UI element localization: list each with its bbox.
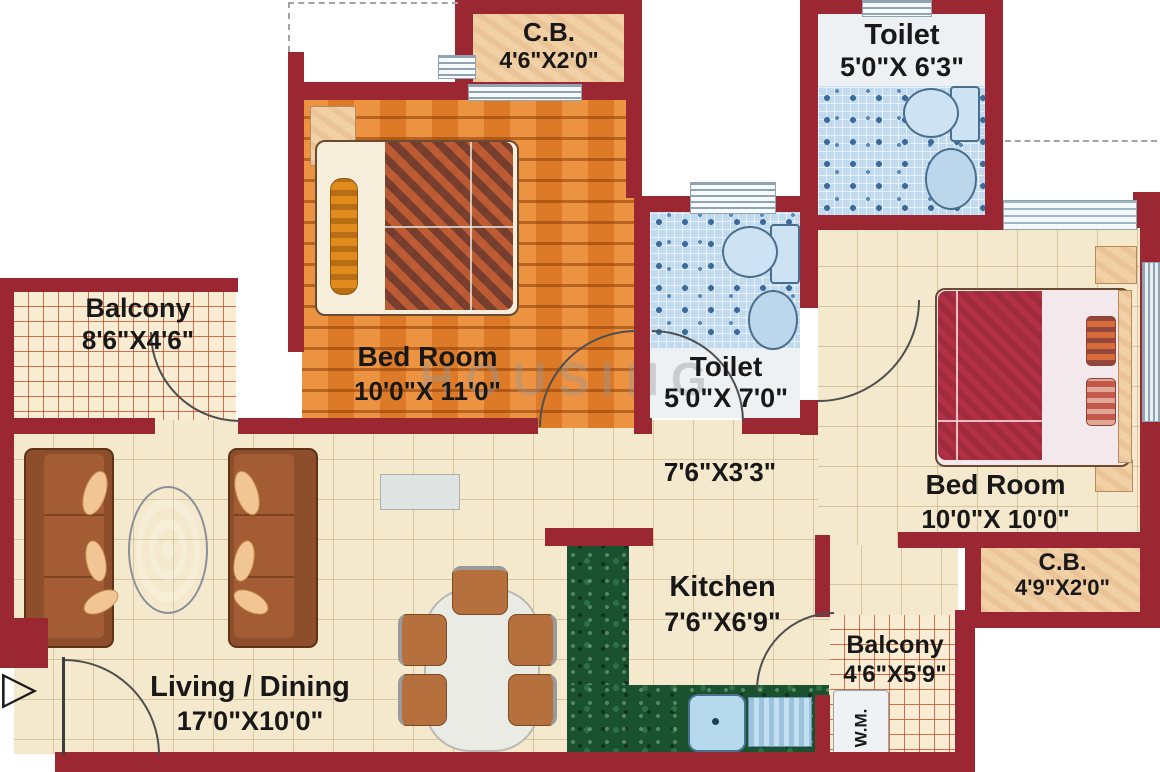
bedroom-right-name: Bed Room xyxy=(888,470,1103,501)
bedroom-right-sidetable-top xyxy=(1095,246,1137,284)
wall-kitchen-north-stub xyxy=(545,528,653,546)
window-bedroom-right-top xyxy=(1003,200,1137,230)
kitchen-dims: 7'6"X6'9" xyxy=(630,608,815,638)
wall-left-outer xyxy=(0,278,14,668)
wall-cb-top-north xyxy=(455,0,642,14)
wall-cb-top-east xyxy=(624,0,642,100)
wall-bedroom-right-ne-corner xyxy=(1133,192,1160,228)
bedroom-left-name: Bed Room xyxy=(320,342,535,373)
window-bedroom-left-top xyxy=(468,84,582,101)
window-toilet-mid-top xyxy=(690,182,776,214)
wall-toilet-mid-east-upper xyxy=(800,196,818,308)
living-dining-dims: 17'0"X10'0" xyxy=(130,707,370,737)
wall-living-north-left xyxy=(0,418,155,434)
bed-right-pillow-2 xyxy=(1086,378,1116,426)
label-balcony-right: Balcony 4'6"X5'9" xyxy=(820,632,970,688)
entry-arrow-icon: ▷ xyxy=(2,664,37,710)
bed-right-pillow-1 xyxy=(1086,316,1116,366)
label-living-dining: Living / Dining 17'0"X10'0" xyxy=(130,672,370,737)
cupboard-right-name: C.B. xyxy=(985,550,1140,576)
toilet-top-dims: 5'0"X 6'3" xyxy=(820,53,984,83)
coffee-table-oval xyxy=(128,486,208,614)
dining-chair-left-2 xyxy=(398,674,447,726)
living-dining-name: Living / Dining xyxy=(130,672,370,704)
dining-chair-top xyxy=(452,566,508,615)
window-bedroom-left-small xyxy=(438,55,476,79)
toilet-mid-basin xyxy=(748,290,798,350)
toilet-top-wc-bowl xyxy=(903,88,959,138)
passage-floor xyxy=(822,545,958,617)
tv-unit xyxy=(380,474,460,510)
kitchen-drainboard xyxy=(748,697,812,747)
wall-toilet-mid-south-left xyxy=(634,418,652,434)
label-toilet-mid: Toilet 5'0"X 7'0" xyxy=(652,352,800,413)
wall-bedroom-left-south xyxy=(238,418,538,434)
dining-chair-left-1 xyxy=(398,614,447,666)
balcony-right-dims: 4'6"X5'9" xyxy=(820,662,970,688)
toilet-top-name: Toilet xyxy=(820,20,984,52)
floor-plan: W.M. HOUSING ▷ C.B. 4 xyxy=(0,0,1160,772)
wall-toilet-top-west xyxy=(800,0,818,200)
wall-cb-right-north xyxy=(898,532,1160,548)
cupboard-right-dims: 4'9"X2'0" xyxy=(985,576,1140,600)
balcony-left-dims: 8'6"X4'6" xyxy=(38,326,238,355)
wall-toilet-mid-west xyxy=(634,196,650,432)
kitchen-name: Kitchen xyxy=(630,572,815,604)
toilet-mid-name: Toilet xyxy=(652,352,800,383)
dashed-line-top-left xyxy=(288,2,458,4)
passage-dims: 7'6"X3'3" xyxy=(620,458,820,487)
bed-right-quilt-line-h xyxy=(938,420,1042,422)
wall-balcony-left-top xyxy=(0,278,238,292)
bedroom-right-dims: 10'0"X 10'0" xyxy=(888,505,1103,534)
label-cupboard-right: C.B. 4'9"X2'0" xyxy=(985,550,1140,601)
door-leaf-entrance xyxy=(62,657,65,755)
sink-drain-dot xyxy=(712,718,719,725)
wall-kitchen-east xyxy=(815,535,830,617)
window-toilet-top xyxy=(862,0,932,17)
label-balcony-left: Balcony 8'6"X4'6" xyxy=(38,294,238,354)
wall-bottom-outer xyxy=(55,752,975,772)
bed-right-quilt-line-v xyxy=(956,291,958,460)
label-bedroom-right: Bed Room 10'0"X 10'0" xyxy=(888,470,1103,533)
window-bedroom-right-east xyxy=(1142,262,1160,422)
dining-chair-right-1 xyxy=(508,614,557,666)
wall-toilet-top-east xyxy=(985,0,1003,230)
cupboard-top-name: C.B. xyxy=(473,18,625,47)
bedroom-left-dims: 10'0"X 11'0" xyxy=(320,377,535,406)
dashed-line-top-left-vertical xyxy=(288,2,290,52)
balcony-right-name: Balcony xyxy=(820,632,970,660)
label-kitchen: Kitchen 7'6"X6'9" xyxy=(630,572,815,638)
label-cupboard-top: C.B. 4'6"X2'0" xyxy=(473,18,625,73)
wall-toilet-top-south xyxy=(800,215,1003,230)
washing-machine-label: W.M. xyxy=(851,709,871,748)
label-passage: 7'6"X3'3" xyxy=(620,458,820,487)
toilet-mid-wc-bowl xyxy=(722,226,778,278)
dashed-line-top-right xyxy=(1005,140,1157,142)
balcony-left-name: Balcony xyxy=(38,294,238,324)
bed-left-quilt-line-h xyxy=(385,226,513,228)
toilet-mid-dims: 5'0"X 7'0" xyxy=(652,384,800,414)
wall-toilet-mid-south-right xyxy=(742,418,818,434)
cupboard-top-dims: 4'6"X2'0" xyxy=(473,48,625,73)
bed-right-blanket xyxy=(938,291,1042,460)
wall-bedroom-left-east xyxy=(626,96,642,198)
label-bedroom-left: Bed Room 10'0"X 11'0" xyxy=(320,342,535,405)
dining-chair-right-2 xyxy=(508,674,557,726)
bed-right-headboard xyxy=(1118,290,1132,463)
toilet-top-basin xyxy=(925,148,977,210)
label-toilet-top: Toilet 5'0"X 6'3" xyxy=(820,20,984,83)
wall-cb-right-south xyxy=(965,612,1160,628)
wall-balcony-right-west-lower xyxy=(815,695,830,752)
bed-left-bolster xyxy=(330,178,358,295)
